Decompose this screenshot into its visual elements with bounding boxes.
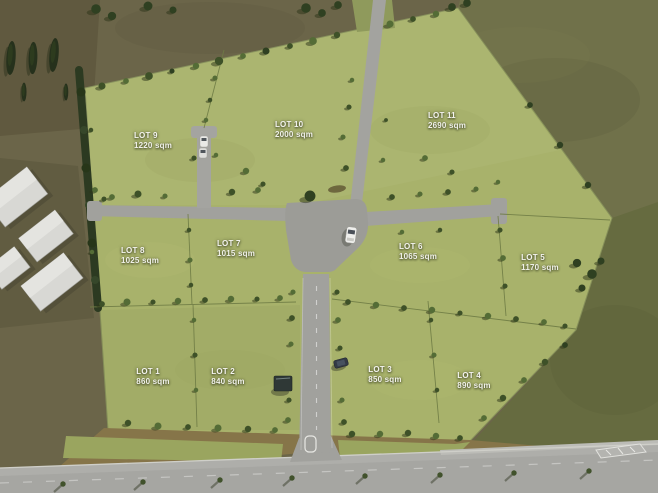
lot-area: 1065 sqm <box>399 252 437 262</box>
lot-label-9: LOT 9 1220 sqm <box>134 131 172 151</box>
aerial-map-render <box>0 0 658 493</box>
lot-name: LOT 3 <box>368 365 401 375</box>
lot-area: 1170 sqm <box>521 263 559 273</box>
lot-area: 860 sqm <box>136 377 169 387</box>
lot-label-6: LOT 6 1065 sqm <box>399 242 437 262</box>
lot-name: LOT 2 <box>211 367 244 377</box>
lot-area: 1220 sqm <box>134 141 172 151</box>
splitter-island-marking <box>305 436 316 452</box>
lot-name: LOT 9 <box>134 131 172 141</box>
lot-name: LOT 6 <box>399 242 437 252</box>
lot-name: LOT 11 <box>428 111 466 121</box>
lot-label-8: LOT 8 1025 sqm <box>121 246 159 266</box>
lot-area: 1015 sqm <box>217 249 255 259</box>
lot-name: LOT 7 <box>217 239 255 249</box>
lot-name: LOT 4 <box>457 371 490 381</box>
lot-area: 2000 sqm <box>275 130 313 140</box>
lot-label-5: LOT 5 1170 sqm <box>521 253 559 273</box>
lot-name: LOT 1 <box>136 367 169 377</box>
lot-area: 1025 sqm <box>121 256 159 266</box>
lot-name: LOT 5 <box>521 253 559 263</box>
lot-label-4: LOT 4 890 sqm <box>457 371 490 391</box>
lot-area: 840 sqm <box>211 377 244 387</box>
lot-label-2: LOT 2 840 sqm <box>211 367 244 387</box>
lot-label-3: LOT 3 850 sqm <box>368 365 401 385</box>
lot-area: 890 sqm <box>457 381 490 391</box>
aerial-masterplan: LOT 9 1220 sqm LOT 10 2000 sqm LOT 11 26… <box>0 0 658 493</box>
lot-area: 2690 sqm <box>428 121 466 131</box>
lot-name: LOT 10 <box>275 120 313 130</box>
lot-label-10: LOT 10 2000 sqm <box>275 120 313 140</box>
lot-label-11: LOT 11 2690 sqm <box>428 111 466 131</box>
lot-area: 850 sqm <box>368 375 401 385</box>
lot-label-1: LOT 1 860 sqm <box>136 367 169 387</box>
lot-label-7: LOT 7 1015 sqm <box>217 239 255 259</box>
lot-name: LOT 8 <box>121 246 159 256</box>
